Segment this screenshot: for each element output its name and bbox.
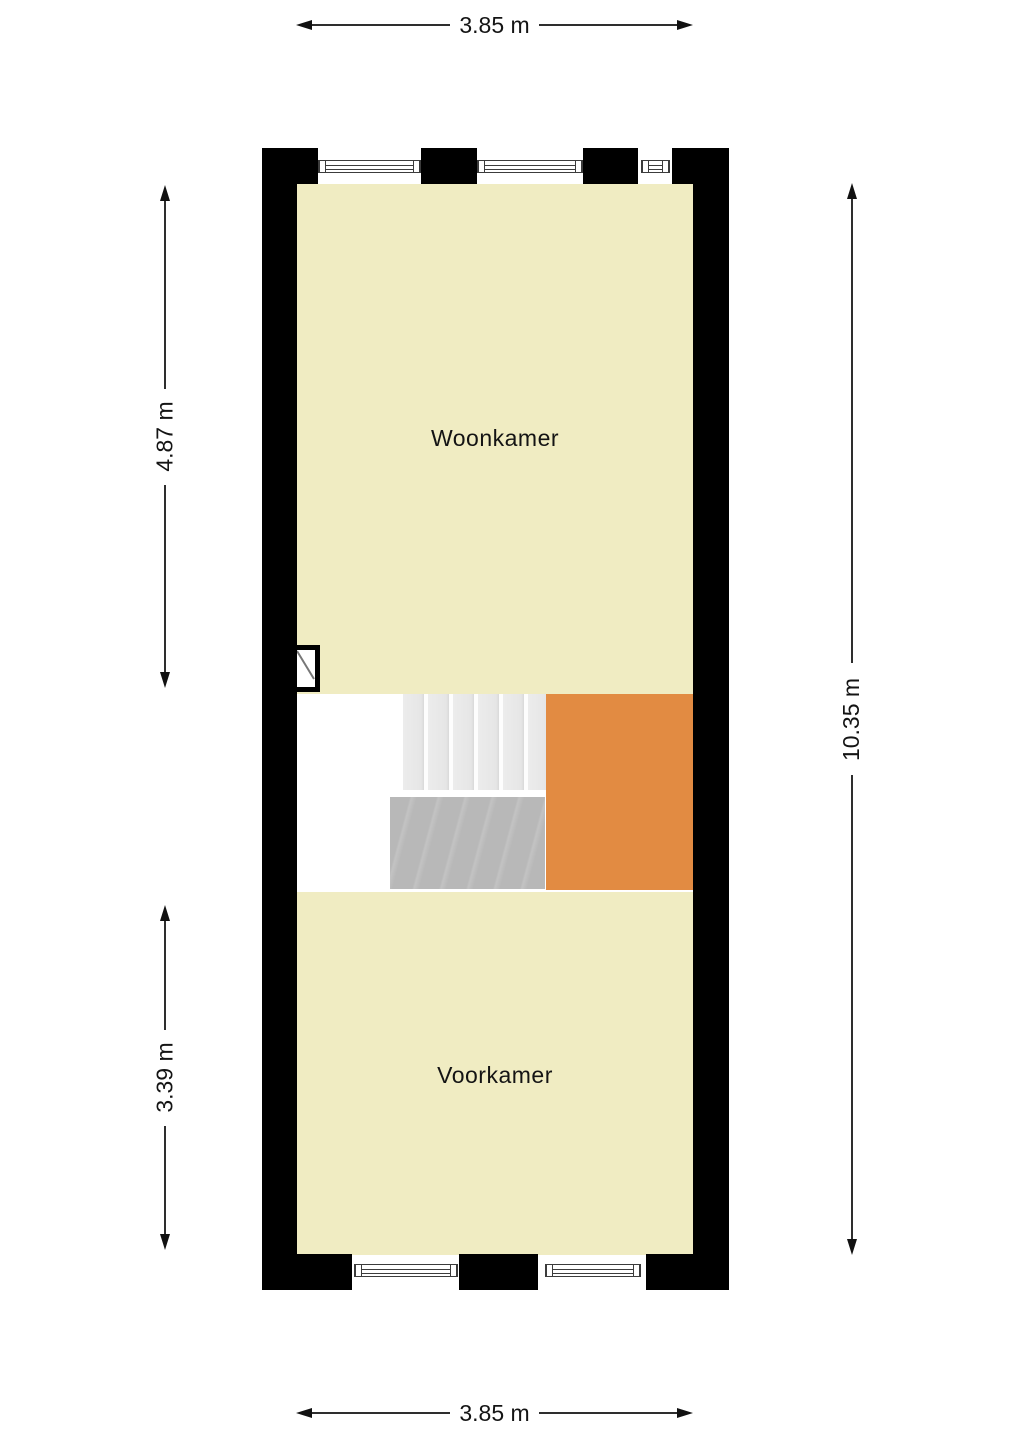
wall-top-right-corner <box>672 148 729 184</box>
window-top-2 <box>477 160 583 173</box>
stairwell-area <box>546 694 693 890</box>
room-woonkamer-label: Woonkamer <box>297 425 693 452</box>
window-jamb-icon <box>478 161 485 172</box>
room-voorkamer: Voorkamer <box>297 892 693 1255</box>
arrow-down-icon <box>847 1239 857 1255</box>
door-left-wall <box>293 645 320 692</box>
arrow-down-icon <box>160 672 170 688</box>
wall-bottom-left-corner <box>262 1254 352 1290</box>
window-jamb-icon <box>633 1265 640 1276</box>
window-jamb-icon <box>355 1265 362 1276</box>
wall-bottom-pier <box>459 1254 538 1290</box>
dimension-left-upper-label: 4.87 m <box>152 401 179 471</box>
wall-right <box>693 148 729 1289</box>
dimension-line <box>539 1412 677 1414</box>
window-jamb-icon <box>642 161 649 172</box>
dimension-left-lower-label: 3.39 m <box>152 1042 179 1112</box>
window-jamb-icon <box>319 161 326 172</box>
door-swing-icon <box>297 650 315 687</box>
wall-left <box>262 148 297 1290</box>
dimension-bottom-label: 3.85 m <box>450 1400 538 1427</box>
staircase-upper-flight <box>403 694 546 790</box>
window-jamb-icon <box>546 1265 553 1276</box>
window-bottom-1 <box>354 1264 458 1277</box>
arrow-left-icon <box>296 20 312 30</box>
arrow-right-icon <box>677 1408 693 1418</box>
wall-top-left-corner <box>262 148 318 184</box>
dimension-line <box>312 1412 450 1414</box>
room-voorkamer-label: Voorkamer <box>297 1062 693 1089</box>
window-jamb-icon <box>450 1265 457 1276</box>
arrow-right-icon <box>677 20 693 30</box>
dimension-left-lower: 3.39 m <box>152 905 178 1250</box>
dimension-line <box>539 24 677 26</box>
arrow-up-icon <box>847 183 857 199</box>
dimension-line <box>164 921 166 1030</box>
dimension-line <box>851 775 853 1239</box>
wall-bottom-right-corner <box>646 1254 729 1290</box>
dimension-right-labelbox: 10.35 m <box>810 663 893 775</box>
staircase-lower-flight <box>390 797 545 889</box>
dimension-right: 10.35 m <box>839 183 865 1255</box>
window-bottom-2 <box>545 1264 641 1277</box>
dimension-left-lower-labelbox: 3.39 m <box>130 1030 200 1126</box>
wall-top-pier-1 <box>421 148 477 184</box>
dimension-line <box>164 485 166 673</box>
dimension-top-label: 3.85 m <box>450 12 538 39</box>
dimension-left-upper: 4.87 m <box>152 185 178 688</box>
window-jamb-icon <box>413 161 420 172</box>
window-jamb-icon <box>662 161 669 172</box>
window-jamb-icon <box>575 161 582 172</box>
room-woonkamer: Woonkamer <box>297 184 693 694</box>
floor-plan-canvas: 3.85 m 4.87 m 3.39 m 10.35 m Woonkamer V… <box>0 0 1018 1440</box>
arrow-down-icon <box>160 1234 170 1250</box>
dimension-left-upper-labelbox: 4.87 m <box>130 389 200 485</box>
dimension-line <box>164 1126 166 1235</box>
door-pane <box>297 650 315 687</box>
dimension-line <box>312 24 450 26</box>
arrow-up-icon <box>160 185 170 201</box>
dimension-right-label: 10.35 m <box>839 677 866 760</box>
dimension-bottom: 3.85 m <box>296 1400 693 1426</box>
dimension-top: 3.85 m <box>296 12 693 38</box>
window-top-3 <box>641 160 670 173</box>
arrow-up-icon <box>160 905 170 921</box>
wall-top-pier-2 <box>583 148 638 184</box>
arrow-left-icon <box>296 1408 312 1418</box>
dimension-line <box>851 199 853 663</box>
window-top-1 <box>318 160 421 173</box>
dimension-line <box>164 201 166 389</box>
